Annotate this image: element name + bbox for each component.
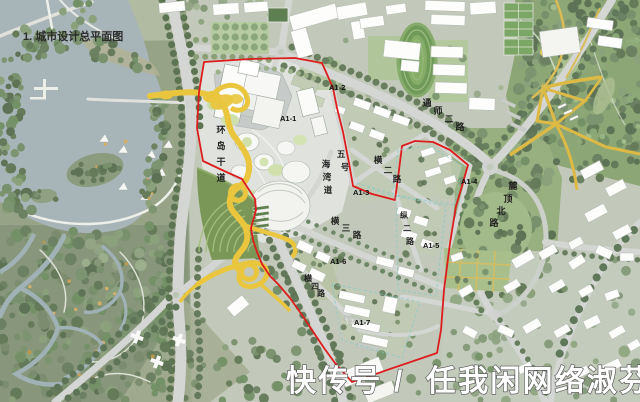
svg-text:A1-1: A1-1 xyxy=(280,114,296,123)
svg-text:路: 路 xyxy=(489,217,499,228)
svg-text:A1-6: A1-6 xyxy=(330,257,346,266)
svg-text:路: 路 xyxy=(353,230,362,240)
svg-text:横: 横 xyxy=(330,216,340,226)
svg-text:五: 五 xyxy=(337,149,346,159)
svg-text:横: 横 xyxy=(373,155,383,165)
svg-text:道: 道 xyxy=(216,172,225,183)
svg-text:快传号/任我闲网络淑芬: 快传号/任我闲网络淑芬 xyxy=(286,364,640,398)
svg-text:路: 路 xyxy=(455,121,465,132)
svg-text:号: 号 xyxy=(341,162,350,172)
svg-text:纵: 纵 xyxy=(400,210,408,220)
svg-text:湾: 湾 xyxy=(323,172,332,182)
svg-text:海: 海 xyxy=(322,159,331,169)
svg-text:师: 师 xyxy=(433,105,442,116)
svg-text:三: 三 xyxy=(342,223,351,233)
svg-text:岛: 岛 xyxy=(216,140,225,151)
svg-text:干: 干 xyxy=(216,157,225,167)
svg-text:二: 二 xyxy=(444,114,453,124)
svg-text:通: 通 xyxy=(422,97,431,108)
svg-text:路: 路 xyxy=(393,174,402,184)
svg-text:道: 道 xyxy=(324,185,333,195)
svg-text:北: 北 xyxy=(496,205,505,216)
svg-text:二: 二 xyxy=(384,165,393,175)
svg-text:1. 城市设计总平面图: 1. 城市设计总平面图 xyxy=(23,29,123,43)
svg-text:麓: 麓 xyxy=(507,180,518,191)
svg-text:A1-3: A1-3 xyxy=(353,188,369,197)
svg-text:A1-7: A1-7 xyxy=(354,318,370,327)
svg-text:路: 路 xyxy=(406,236,415,246)
svg-text:A1-4: A1-4 xyxy=(461,177,478,186)
svg-text:路: 路 xyxy=(317,288,326,298)
svg-text:二: 二 xyxy=(403,224,411,233)
svg-text:顶: 顶 xyxy=(503,194,512,204)
svg-text:A1-2: A1-2 xyxy=(329,83,345,92)
svg-text:环: 环 xyxy=(216,125,225,135)
svg-text:A1-5: A1-5 xyxy=(423,241,439,250)
